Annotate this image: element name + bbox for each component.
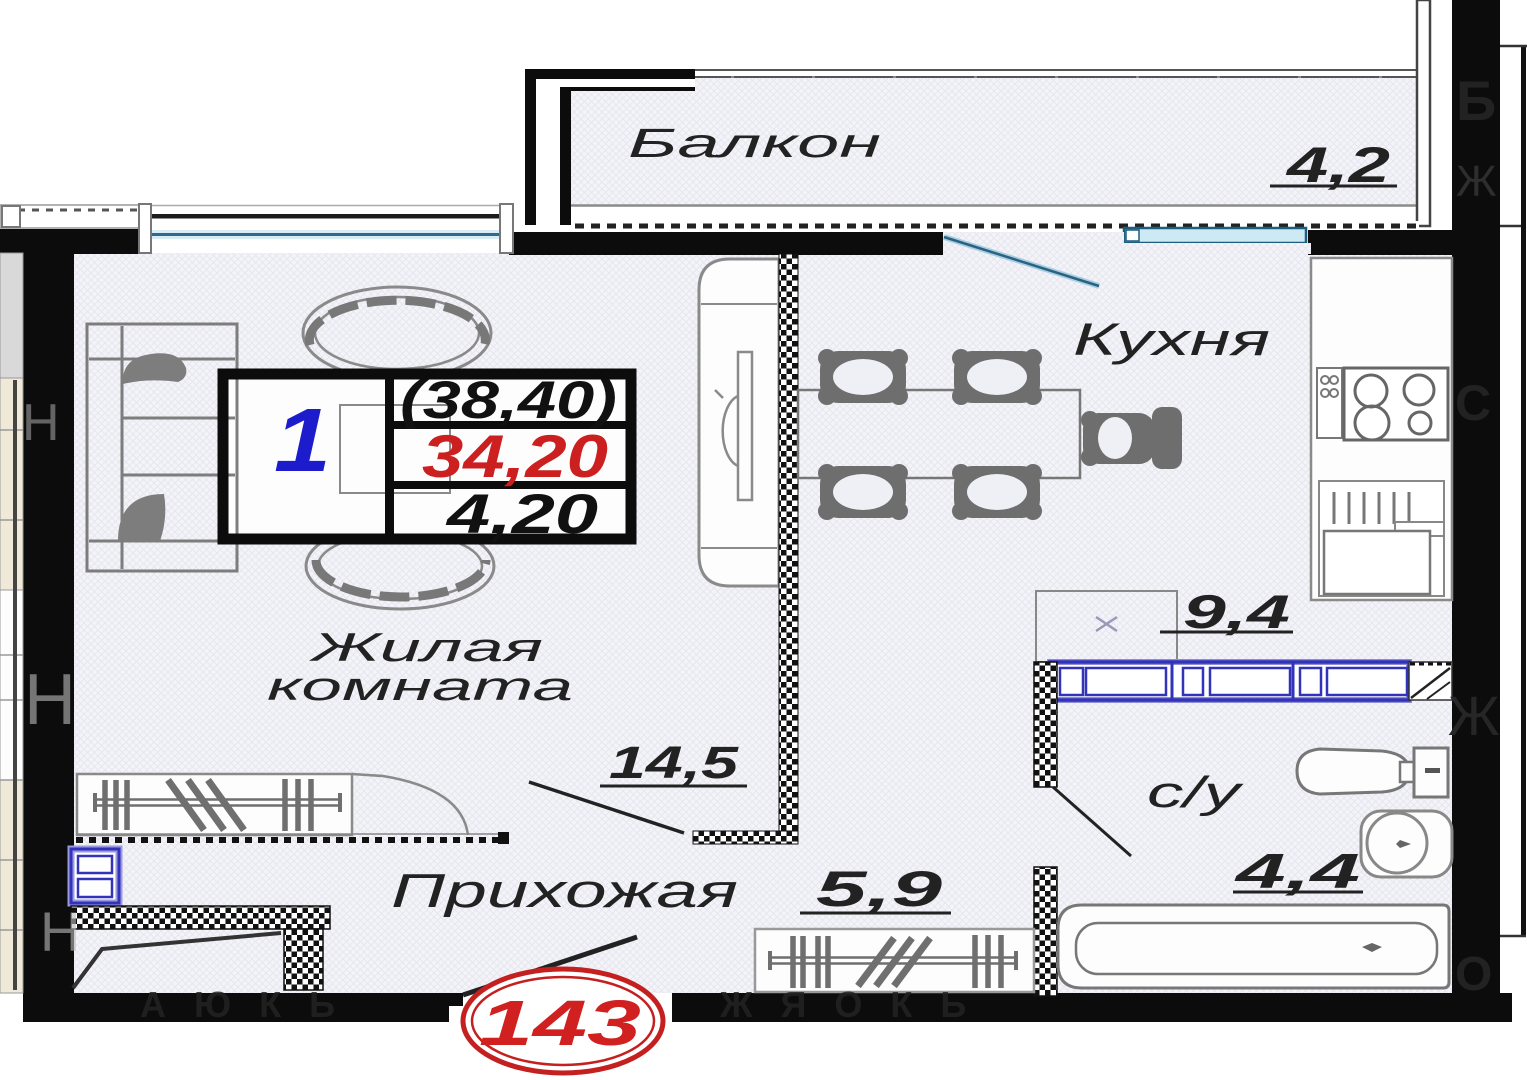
svg-text:34,20: 34,20 — [422, 423, 608, 490]
svg-text:Н: Н — [24, 660, 76, 740]
svg-text:Н: Н — [40, 900, 80, 963]
svg-text:1: 1 — [274, 391, 331, 491]
svg-text:Н: Н — [22, 394, 60, 452]
svg-text:Ж: Ж — [1448, 684, 1500, 747]
svg-text:14,5: 14,5 — [609, 737, 739, 788]
svg-text:(38,40): (38,40) — [400, 371, 617, 430]
svg-text:9,4: 9,4 — [1183, 585, 1290, 638]
svg-text:С: С — [1455, 375, 1491, 431]
svg-text:5,9: 5,9 — [816, 861, 942, 917]
svg-text:с/у: с/у — [1147, 768, 1245, 817]
svg-text:Балкон: Балкон — [628, 120, 881, 166]
svg-text:143: 143 — [479, 987, 641, 1059]
svg-text:4,20: 4,20 — [446, 482, 598, 545]
svg-text:ЖЯОКЬ: ЖЯОКЬ — [719, 984, 994, 1025]
svg-text:Б: Б — [1456, 69, 1496, 132]
svg-text:Прихожая: Прихожая — [391, 864, 738, 917]
svg-text:О: О — [1455, 948, 1492, 1001]
svg-text:Ж: Ж — [1456, 157, 1497, 206]
svg-text:комната: комната — [267, 665, 573, 709]
svg-text:АЮКЬ: АЮКЬ — [140, 984, 363, 1025]
svg-text:Жилая: Жилая — [308, 626, 543, 670]
svg-text:Кухня: Кухня — [1073, 314, 1270, 365]
